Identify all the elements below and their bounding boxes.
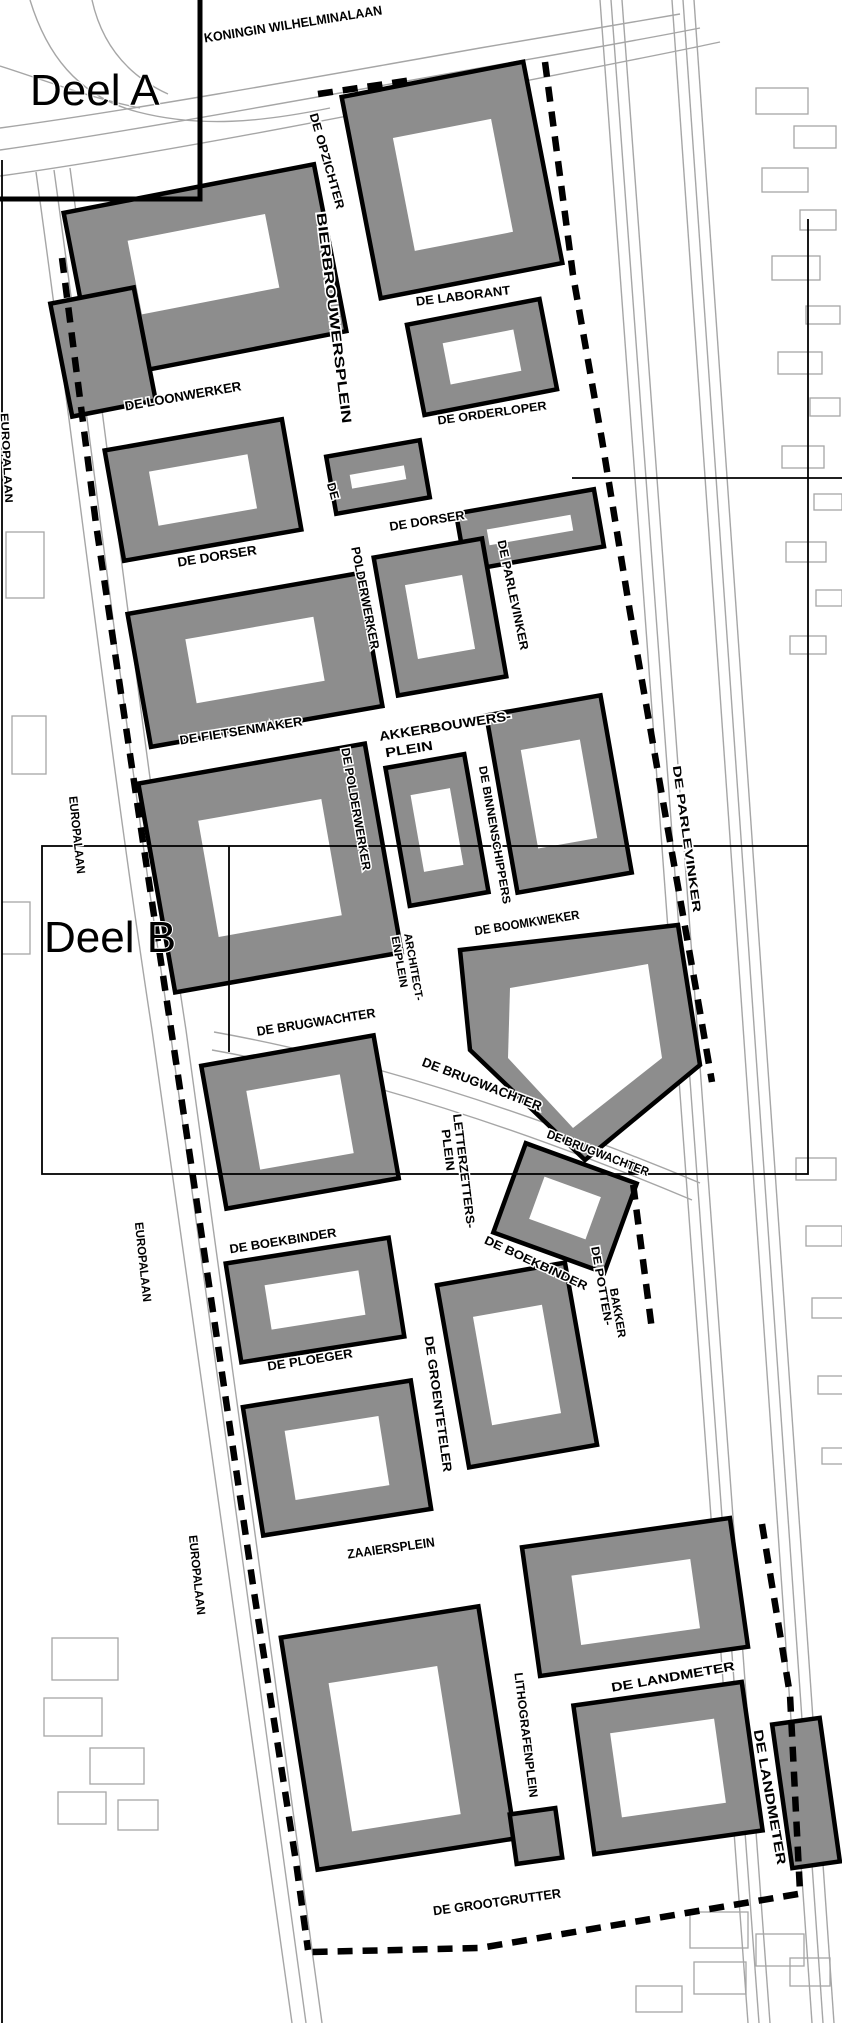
context-building: [636, 1986, 682, 2012]
building-block: [342, 62, 563, 299]
building-block: [385, 754, 488, 906]
street-label-de_dorser: DE DORSER: [388, 508, 465, 534]
context-building: [790, 1958, 830, 1986]
building-block-footprint: [510, 1808, 563, 1864]
street-label-letterzettersplein_line1: LETTERZETTERS-: [450, 1113, 478, 1229]
deel-a-label: Deel A: [30, 66, 160, 115]
building-block: [407, 299, 557, 415]
courtyard: [246, 1074, 353, 1169]
street-label-de_grootgrutter: DE GROOTGRUTTER: [432, 1886, 562, 1919]
context-building: [58, 1792, 106, 1824]
context-building: [12, 716, 46, 774]
building-block: [374, 539, 507, 696]
context-building: [782, 446, 824, 468]
city-plan-map: Deel A Deel B KONINGIN WILHELMINALAANDE …: [0, 0, 842, 2023]
context-building: [786, 542, 826, 562]
street-label-europalaan: EUROPALAAN: [66, 795, 88, 874]
deel-b-label: Deel B: [44, 913, 176, 962]
context-building: [118, 1800, 158, 1830]
context-building: [6, 532, 44, 598]
context-building: [796, 1158, 836, 1180]
street-label-lithografenplein: LITHOGRAFENPLEIN: [511, 1672, 540, 1799]
context-building: [814, 494, 842, 510]
context-building: [806, 1226, 842, 1246]
street-label-de_parlevinker: DE PARLEVINKER: [670, 765, 703, 914]
context-building: [772, 256, 820, 280]
context-building: [762, 168, 808, 192]
building-block: [105, 419, 302, 561]
building-block: [243, 1381, 431, 1536]
building-block: [201, 1035, 399, 1208]
courtyard: [285, 1416, 390, 1500]
building-block: [510, 1808, 563, 1864]
context-building: [812, 1298, 842, 1318]
context-building: [756, 88, 808, 114]
plan-boundary-dashed-line: [312, 1894, 798, 1952]
context-building: [690, 1912, 748, 1948]
street-label-de_boomkweker: DE BOOMKWEKER: [474, 908, 581, 938]
building-block: [522, 1518, 748, 1676]
context-building: [44, 1698, 102, 1736]
street-label-de_brugwachter: DE BRUGWACHTER: [256, 1005, 377, 1039]
context-building: [694, 1962, 746, 1994]
street-label-koningin_wilhelminalaan: KONINGIN WILHELMINALAAN: [203, 3, 383, 46]
context-building: [816, 590, 842, 606]
courtyard: [198, 799, 342, 937]
street-label-europalaan: EUROPALAAN: [186, 1534, 208, 1615]
context-building: [810, 398, 840, 416]
plan-boundary-dashed-line: [630, 1160, 652, 1330]
street-label-zaaiersplein: ZAAIERSPLEIN: [346, 1534, 435, 1561]
courtyard: [610, 1719, 726, 1818]
context-building: [794, 126, 836, 148]
context-building: [778, 352, 822, 374]
building-block: [486, 695, 631, 892]
street-label-de_prefix: DE: [324, 481, 342, 501]
courtyard: [329, 1666, 461, 1831]
context-building: [818, 1376, 842, 1394]
building-block: [573, 1682, 762, 1854]
context-building: [822, 1448, 842, 1464]
building-block: [281, 1606, 515, 1869]
context-building: [90, 1748, 144, 1784]
context-building: [800, 210, 836, 230]
building-block: [437, 1263, 597, 1468]
building-block: [226, 1238, 405, 1363]
context-building: [806, 306, 840, 324]
context-building: [2, 902, 30, 954]
building-blocks-layer: [50, 62, 840, 1870]
context-building: [52, 1638, 118, 1680]
street-label-europalaan: EUROPALAAN: [132, 1221, 154, 1302]
street-label-europalaan: EUROPALAAN: [0, 413, 14, 504]
building-block: [326, 440, 430, 514]
